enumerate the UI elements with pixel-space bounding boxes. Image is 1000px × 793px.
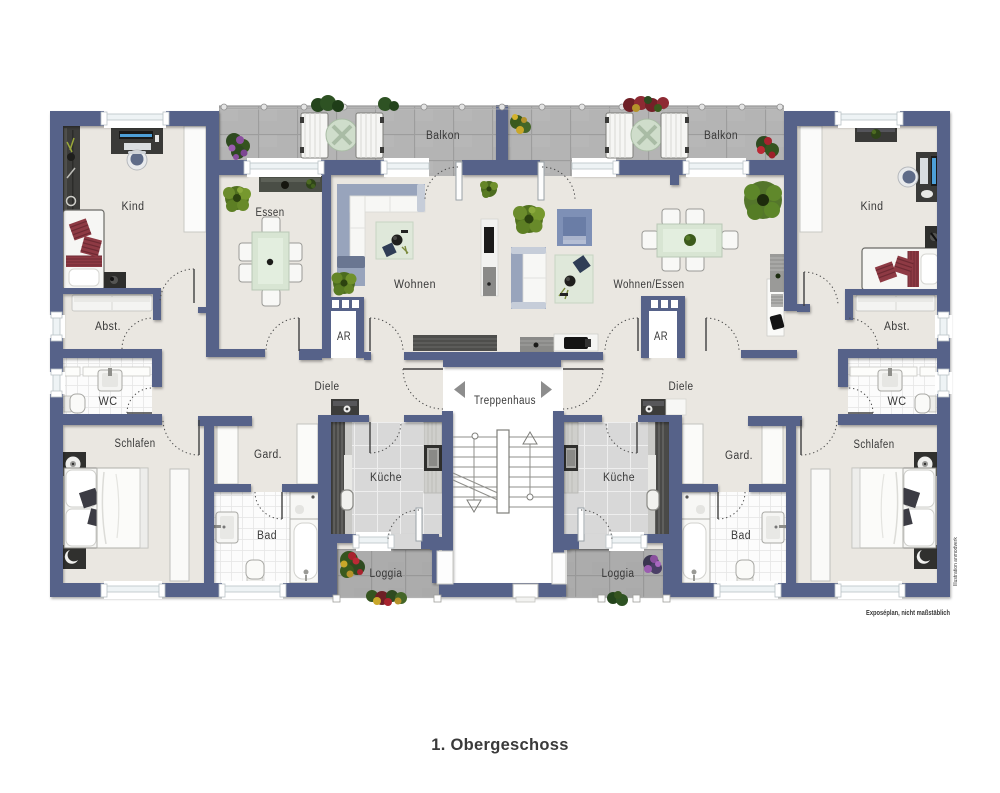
svg-text:Küche: Küche: [370, 472, 402, 484]
svg-text:Gard.: Gard.: [725, 450, 753, 462]
svg-text:Kind: Kind: [122, 201, 145, 213]
svg-text:Abst.: Abst.: [95, 321, 121, 333]
svg-text:Loggia: Loggia: [602, 568, 635, 580]
svg-text:Bad: Bad: [257, 530, 277, 542]
svg-text:WC: WC: [99, 396, 118, 408]
svg-text:Gard.: Gard.: [254, 449, 282, 461]
svg-text:Abst.: Abst.: [884, 321, 910, 333]
svg-text:Wohnen/Essen: Wohnen/Essen: [614, 279, 685, 291]
svg-text:WC: WC: [888, 396, 907, 408]
svg-text:AR: AR: [654, 331, 668, 343]
svg-text:Küche: Küche: [603, 472, 635, 484]
svg-text:Schlafen: Schlafen: [854, 439, 895, 451]
svg-text:Kind: Kind: [861, 201, 884, 213]
svg-text:Bad: Bad: [731, 530, 751, 542]
svg-text:Diele: Diele: [669, 381, 694, 393]
svg-text:AR: AR: [337, 331, 351, 343]
svg-text:Treppenhaus: Treppenhaus: [474, 395, 536, 407]
svg-text:Wohnen: Wohnen: [394, 279, 436, 291]
svg-text:Balkon: Balkon: [426, 130, 460, 142]
svg-text:Illustration anmodverk: Illustration anmodverk: [953, 537, 959, 586]
svg-text:Schlafen: Schlafen: [115, 438, 156, 450]
svg-text:Essen: Essen: [256, 207, 285, 219]
svg-text:Exposéplan, nicht maßstäblich: Exposéplan, nicht maßstäblich: [866, 608, 950, 617]
svg-text:Diele: Diele: [315, 381, 340, 393]
svg-text:Loggia: Loggia: [370, 568, 403, 580]
svg-text:1. Obergeschoss: 1. Obergeschoss: [431, 736, 568, 754]
svg-text:Balkon: Balkon: [704, 130, 738, 142]
